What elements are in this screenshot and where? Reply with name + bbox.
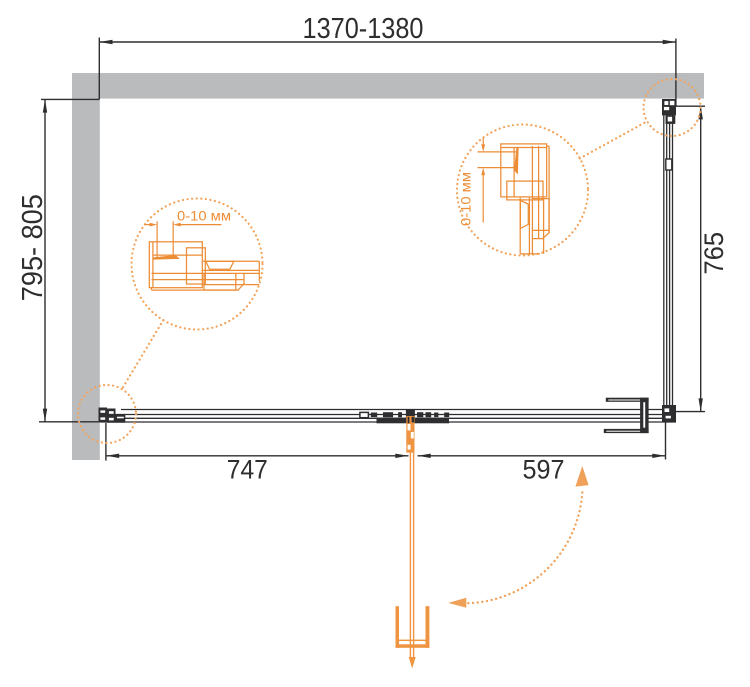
svg-text:795- 805: 795- 805 — [17, 194, 49, 301]
svg-text:747: 747 — [227, 455, 268, 485]
svg-text:0-10 мм: 0-10 мм — [459, 172, 474, 226]
svg-text:1370-1380: 1370-1380 — [303, 13, 424, 45]
svg-text:0-10 мм: 0-10 мм — [177, 209, 231, 224]
svg-text:597: 597 — [523, 455, 565, 485]
svg-text:765: 765 — [699, 232, 729, 275]
